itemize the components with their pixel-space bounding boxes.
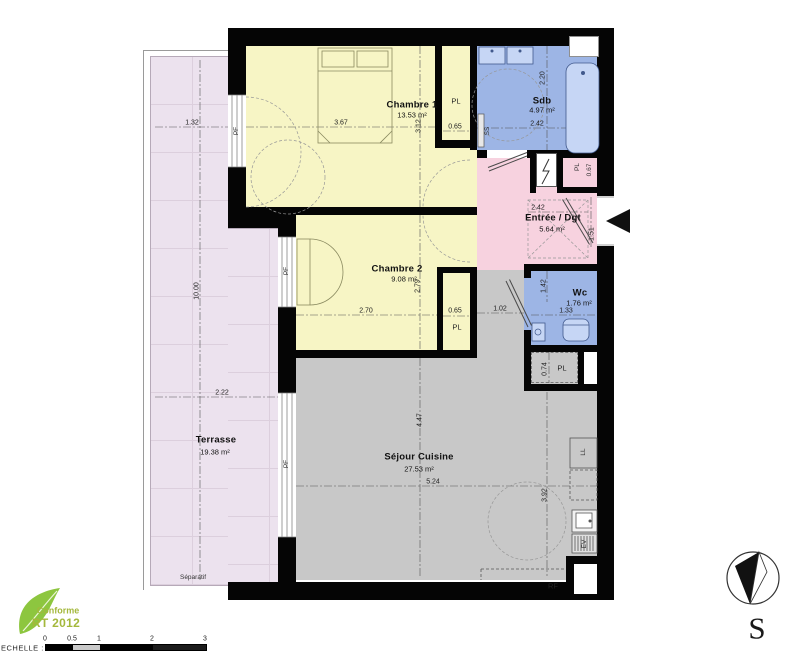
dim-wc-pl: 0.74: [542, 362, 549, 376]
wall-ch2-pl-left: [437, 273, 443, 350]
wall-sdb-entree-a: [477, 150, 487, 158]
compass-icon: [727, 552, 779, 604]
duct-top-right: [569, 36, 599, 57]
wall-top: [228, 28, 614, 46]
window-label-chambre2: PF: [284, 267, 291, 275]
dim-terrasse-w1: 1.32: [185, 120, 199, 127]
chambre1-floor: [246, 46, 477, 207]
chambre2-area: 9.08 m²: [391, 275, 416, 283]
dim-chambre2-pl: 0.65: [448, 308, 462, 315]
sejour-area: 27.53 m²: [404, 465, 434, 473]
dim-sejour-kitchen-h: 3.92: [542, 488, 549, 502]
scale-tick-1: 1: [97, 636, 101, 643]
terrasse-slab-lower: [228, 228, 279, 586]
chambre1-closet-label: PL: [451, 97, 460, 105]
sejour-nook-floor: [477, 270, 524, 358]
chambre1-name: Chambre 1: [387, 100, 438, 110]
electrical-panel: [536, 153, 557, 187]
wall-wc-top: [524, 264, 597, 271]
scale-tick-3: 3: [203, 636, 207, 643]
chambre2-closet-label: PL: [452, 323, 461, 331]
terrasse-slab-upper: [150, 56, 230, 586]
dim-sdb-w: 2.42: [530, 121, 544, 128]
wc-name: Wc: [573, 288, 588, 298]
dim-chambre1-h: 3.12: [416, 119, 423, 133]
sdb-area: 4.97 m²: [529, 106, 554, 114]
dim-wc-h: 1.42: [541, 279, 548, 293]
wc-closet-label: PL: [557, 364, 566, 372]
compass-south-label: S: [748, 613, 765, 644]
dim-chambre2-h: 2.79: [415, 279, 422, 293]
wall-ch2-pl-top: [437, 267, 477, 273]
chambre2-name: Chambre 2: [372, 264, 423, 274]
chambre1-area: 13.53 m²: [397, 111, 427, 119]
wall-ch1-ch2: [228, 207, 477, 215]
wc-closet-floor: [531, 352, 578, 383]
terrasse-rim-left: [143, 50, 151, 590]
sink-label: EV: [582, 540, 589, 549]
chambre2-floor: [296, 215, 477, 350]
niche-right-of-closet: [584, 352, 597, 384]
logo-conforme: Conforme: [37, 607, 80, 616]
entree-name: Entrée / Dgt: [525, 213, 581, 223]
washer-label: LL: [581, 448, 588, 455]
dim-entree-pl: 0.67: [587, 164, 594, 177]
wall-duct-top: [566, 556, 597, 564]
dim-wc-w: 1.33: [559, 308, 573, 315]
dim-terrasse-w2: 2.22: [215, 390, 229, 397]
dim-chambre1-w: 3.67: [334, 120, 348, 127]
wall-entree-pl-left: [557, 153, 563, 187]
wall-right: [597, 28, 614, 600]
wall-ch1-sdb: [470, 46, 477, 150]
wc-area: 1.76 m²: [566, 299, 591, 307]
dim-chambre1-pl: 0.65: [448, 124, 462, 131]
dim-sdb-h: 2.20: [540, 71, 547, 85]
dim-wc-access: 1.02: [493, 306, 507, 313]
dim-sejour-w: 5.24: [426, 479, 440, 486]
terrasse-area: 19.38 m²: [200, 448, 230, 456]
entree-closet-label: PL: [575, 163, 582, 171]
duct-bottom-right: [574, 564, 597, 594]
scale-tick-0: 0: [43, 636, 47, 643]
scale-tick-05: 0.5: [67, 636, 77, 643]
fridge-label: RF: [548, 582, 558, 590]
wall-entree-pl-bottom: [557, 187, 597, 193]
wall-wc-left-b: [524, 330, 531, 390]
scale-tick-2: 2: [150, 636, 154, 643]
separatif-label: Séparatif: [180, 575, 206, 582]
window-label-chambre1: PF: [234, 127, 241, 135]
sejour-floor: [296, 358, 597, 580]
dim-entree-w: 2.42: [531, 205, 545, 212]
terrasse-rim-top: [143, 50, 229, 57]
scale-label: ECHELLE :: [1, 644, 44, 653]
wall-wc-bottom: [524, 345, 597, 352]
dim-chambre2-w: 2.70: [359, 308, 373, 315]
dim-sejour-h: 4.47: [417, 413, 424, 427]
sejour-name: Séjour Cuisine: [384, 452, 453, 462]
dim-entree-door: 1.51: [589, 227, 596, 241]
wall-wcpl-bottom: [524, 384, 597, 391]
wall-entree-ch2: [470, 267, 477, 358]
entree-area: 5.64 m²: [539, 225, 564, 233]
scale-bar: [45, 644, 207, 651]
wall-ch2-bottom: [296, 350, 477, 358]
terrasse-name: Terrasse: [196, 435, 237, 445]
wall-ch1-pl: [435, 46, 442, 140]
dim-terrasse-l: 10.00: [194, 282, 201, 300]
wall-wc-left-a: [524, 271, 531, 278]
towel-radiator-label: SS: [485, 127, 492, 136]
floor-plan-page: Chambre 1 13.53 m² 3.67 3.12 PL 0.65 Sdb…: [0, 0, 800, 656]
logo-rt2012: RT 2012: [32, 617, 80, 629]
wall-left-lower: [278, 228, 296, 582]
window-label-sejour: PF: [284, 460, 291, 468]
